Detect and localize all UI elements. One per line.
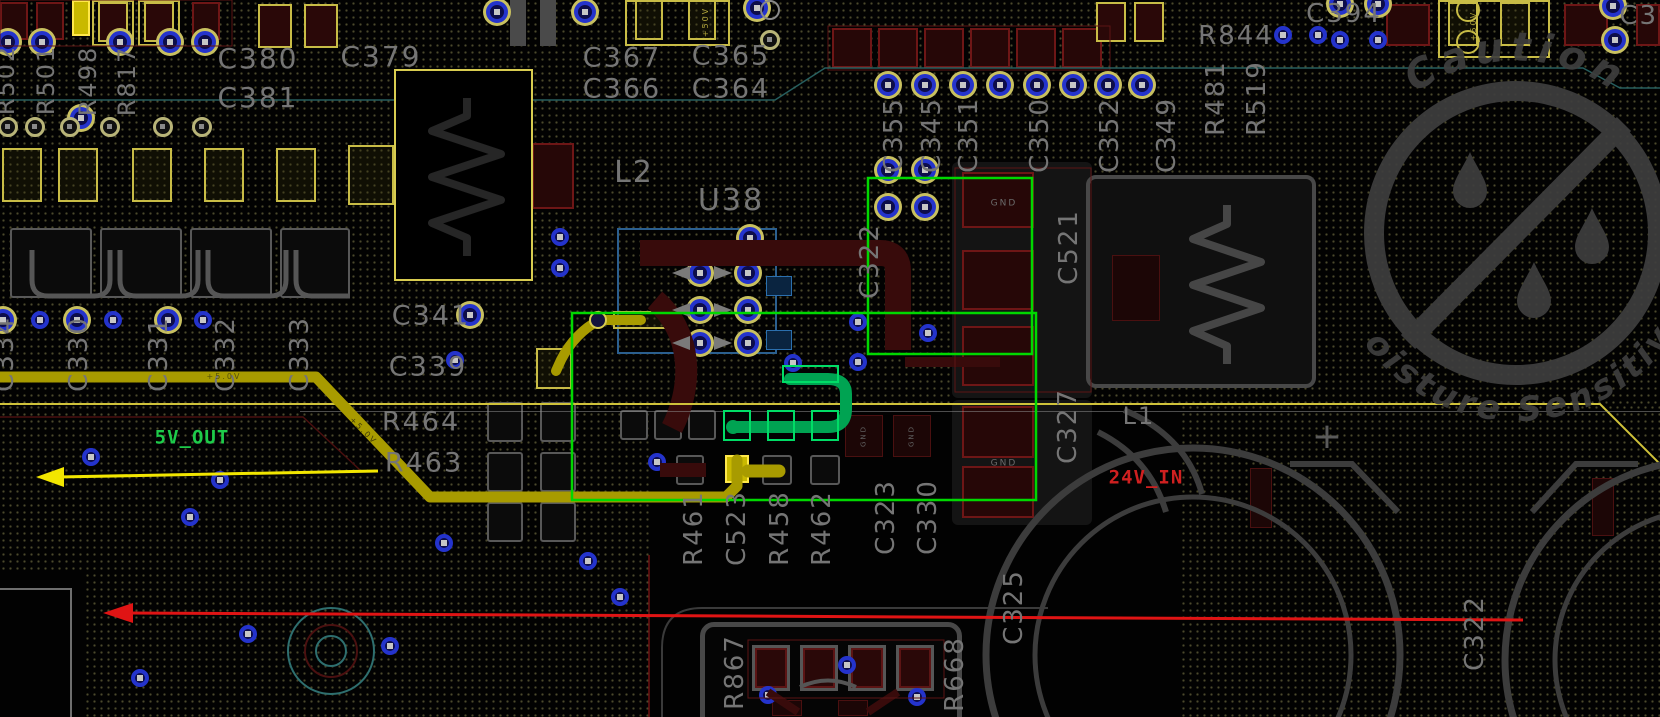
label-c345: C345 xyxy=(919,97,945,173)
via xyxy=(1131,74,1153,96)
label-c339: C339 xyxy=(389,354,467,381)
via xyxy=(914,196,936,218)
label-r519: R519 xyxy=(1244,60,1270,136)
via xyxy=(551,259,569,277)
via xyxy=(100,117,120,137)
pad-redy xyxy=(1134,2,1164,42)
pad-redy xyxy=(1096,2,1126,42)
trace-5v-ring-pad xyxy=(590,312,606,328)
label-r867: R867 xyxy=(722,634,748,710)
net-arrow-24v-in xyxy=(103,603,1523,623)
label-plus-mark: + xyxy=(1312,419,1344,455)
label-c322: C322 xyxy=(857,223,883,299)
pad-ysq xyxy=(1500,2,1530,46)
via xyxy=(551,228,569,246)
label-c331: C331 xyxy=(146,316,172,392)
via xyxy=(689,299,711,321)
via xyxy=(1331,31,1349,49)
via xyxy=(486,1,508,23)
via xyxy=(60,117,80,137)
label-c380: C380 xyxy=(218,45,299,73)
pad-gray xyxy=(676,455,704,485)
pad-dark xyxy=(1112,255,1160,321)
pad-gray xyxy=(10,228,92,298)
via xyxy=(746,0,768,19)
via xyxy=(877,196,899,218)
via xyxy=(914,74,936,96)
pad-gray xyxy=(540,452,576,492)
label-c355: C355 xyxy=(881,97,907,173)
pad-gray xyxy=(487,452,523,492)
via xyxy=(159,31,181,53)
pad-grayfill xyxy=(540,0,556,46)
pad-red xyxy=(962,250,1034,310)
via xyxy=(192,117,212,137)
trace-green-highlight xyxy=(733,379,846,427)
via xyxy=(131,669,149,687)
via xyxy=(689,332,711,354)
via xyxy=(381,637,399,655)
label-c350: C350 xyxy=(1027,97,1053,173)
pad-red xyxy=(532,143,574,209)
via xyxy=(1026,74,1048,96)
via xyxy=(784,354,802,372)
pad-red xyxy=(1386,4,1430,46)
net-arrow-5v-out xyxy=(36,467,378,487)
via xyxy=(1604,29,1626,51)
label-gnd-3: GND xyxy=(861,425,868,447)
keepout-rectangle xyxy=(0,573,86,717)
via xyxy=(648,453,666,471)
label-c381: C381 xyxy=(218,84,299,112)
label-r498: R498 xyxy=(76,46,100,116)
label-c364: C364 xyxy=(692,76,770,103)
pad-red xyxy=(970,28,1010,68)
net-in-label: 24V_IN xyxy=(1109,469,1184,488)
pad-ysq xyxy=(2,148,42,202)
label-plus5v-b: +5.0V xyxy=(348,416,378,446)
label-r458: R458 xyxy=(767,490,793,566)
pad-gray xyxy=(810,455,840,485)
via xyxy=(759,686,777,704)
label-c327: C327 xyxy=(1055,388,1081,464)
via xyxy=(574,1,596,23)
pad-red xyxy=(878,28,918,68)
label-l1: L1 xyxy=(1123,404,1156,428)
label-r817: R817 xyxy=(115,46,139,116)
pad-ysq xyxy=(204,148,244,202)
via xyxy=(211,471,229,489)
pad-red xyxy=(924,28,964,68)
pad-blue xyxy=(766,330,792,350)
pad-blue xyxy=(766,276,792,296)
label-c352: C352 xyxy=(1097,97,1123,173)
pad-gray xyxy=(487,502,523,542)
label-c349: C349 xyxy=(1154,97,1180,173)
label-c365: C365 xyxy=(692,43,770,70)
label-plus50v-a: +50V xyxy=(702,7,710,37)
pad-redsq xyxy=(800,645,838,691)
via xyxy=(1274,26,1292,44)
via xyxy=(1097,74,1119,96)
label-r502: R502 xyxy=(0,45,18,115)
label-r481: R481 xyxy=(1203,60,1229,136)
label-c367: C367 xyxy=(583,45,661,72)
via xyxy=(919,324,937,342)
label-c333: C333 xyxy=(287,316,313,392)
label-c351: C351 xyxy=(956,97,982,173)
via xyxy=(104,311,122,329)
label-c521: C521 xyxy=(1056,209,1082,285)
pad-red xyxy=(1564,4,1608,46)
pad-ybright xyxy=(725,455,749,483)
inductor-l2-body xyxy=(395,70,532,280)
via xyxy=(1369,31,1387,49)
label-c323: C323 xyxy=(873,479,899,555)
label-c330-b: C330 xyxy=(915,479,941,555)
label-gnd-4: GND xyxy=(909,425,916,447)
via xyxy=(579,552,597,570)
via xyxy=(737,262,759,284)
label-c322-b: C322 xyxy=(1462,595,1488,671)
pad-red xyxy=(962,466,1034,518)
label-c341: C341 xyxy=(392,303,470,330)
copper-pour-region-bottom-right xyxy=(1180,404,1660,717)
label-r668: R668 xyxy=(942,636,968,712)
pad-ysq xyxy=(536,348,572,389)
label-c394: C394 xyxy=(1306,1,1382,27)
label-c379: C379 xyxy=(341,43,422,71)
via xyxy=(194,31,216,53)
pad-ysq xyxy=(348,145,394,205)
pad-redsq xyxy=(896,645,934,691)
via xyxy=(849,353,867,371)
via xyxy=(0,117,18,137)
via xyxy=(849,313,867,331)
label-plus50v-b: +50V xyxy=(1470,11,1478,41)
pad-gray xyxy=(100,228,182,298)
pad-ysq xyxy=(635,0,663,40)
via xyxy=(739,227,761,249)
net-out-label: 5V_OUT xyxy=(155,429,230,448)
via xyxy=(194,311,212,329)
via xyxy=(82,448,100,466)
label-c334: C334 xyxy=(0,316,18,392)
via xyxy=(239,625,257,643)
watermark-drops xyxy=(1453,152,1609,318)
label-gnd-2: GND xyxy=(991,460,1018,469)
pad-ysq xyxy=(58,148,98,202)
label-plus5v-a: +5.0V xyxy=(207,373,242,381)
pad-gray xyxy=(487,402,523,442)
via xyxy=(25,117,45,137)
via xyxy=(838,656,856,674)
via xyxy=(611,588,629,606)
pad-gray xyxy=(620,410,648,440)
pad-dark xyxy=(838,700,868,716)
via xyxy=(952,74,974,96)
watermark-circle xyxy=(1374,91,1658,375)
via xyxy=(737,299,759,321)
watermark-slash xyxy=(1408,124,1624,342)
via xyxy=(435,534,453,552)
via xyxy=(153,117,173,137)
pad-gray xyxy=(654,410,682,440)
via xyxy=(1062,74,1084,96)
trace-green-dot xyxy=(726,420,740,434)
label-r501: R501 xyxy=(34,45,58,115)
label-gnd-1: GND xyxy=(991,200,1018,209)
label-l2: L2 xyxy=(614,158,654,188)
via xyxy=(737,332,759,354)
pad-gray xyxy=(280,228,350,298)
pad-dark xyxy=(1250,468,1272,528)
via xyxy=(908,688,926,706)
pad-dark xyxy=(1592,478,1614,536)
pad-gray xyxy=(688,410,716,440)
pad-gray xyxy=(540,502,576,542)
label-c325: C325 xyxy=(1001,569,1027,645)
pad-ysq xyxy=(132,148,172,202)
pad-gray xyxy=(540,402,576,442)
keepout-inner-outline xyxy=(0,588,72,717)
via xyxy=(989,74,1011,96)
label-c39x: C39 xyxy=(1619,3,1660,29)
pad-dark xyxy=(772,700,802,716)
pad-red xyxy=(962,326,1034,386)
mounting-hole xyxy=(288,608,374,694)
label-u38: U38 xyxy=(698,186,764,216)
pcb-layout-canvas[interactable]: Caution Moisture Sensitive C380C381C379C… xyxy=(0,0,1660,717)
label-c523: C523 xyxy=(724,490,750,566)
via xyxy=(689,262,711,284)
pad-grayfill xyxy=(510,0,526,46)
label-r844: R844 xyxy=(1198,23,1274,49)
pad-gray xyxy=(762,455,792,485)
pad-ybright xyxy=(72,0,90,36)
label-r462: R462 xyxy=(809,490,835,566)
via xyxy=(181,508,199,526)
pad-redsq xyxy=(752,645,790,691)
pad-ysq xyxy=(276,148,316,202)
via xyxy=(877,74,899,96)
pad-red xyxy=(1016,28,1056,68)
pad-ysq xyxy=(613,311,667,329)
via xyxy=(31,311,49,329)
pad-red xyxy=(962,406,1034,458)
label-r464: R464 xyxy=(382,409,460,436)
label-c366: C366 xyxy=(583,76,661,103)
pad-redy xyxy=(304,4,338,48)
label-c330: C330 xyxy=(66,316,92,392)
green-pad-outlines xyxy=(724,366,838,440)
inductor-l2-zigzag xyxy=(432,98,501,256)
pad-red xyxy=(832,28,872,68)
label-r461: R461 xyxy=(681,490,707,566)
pad-gray xyxy=(190,228,272,298)
label-r463: R463 xyxy=(385,450,463,477)
